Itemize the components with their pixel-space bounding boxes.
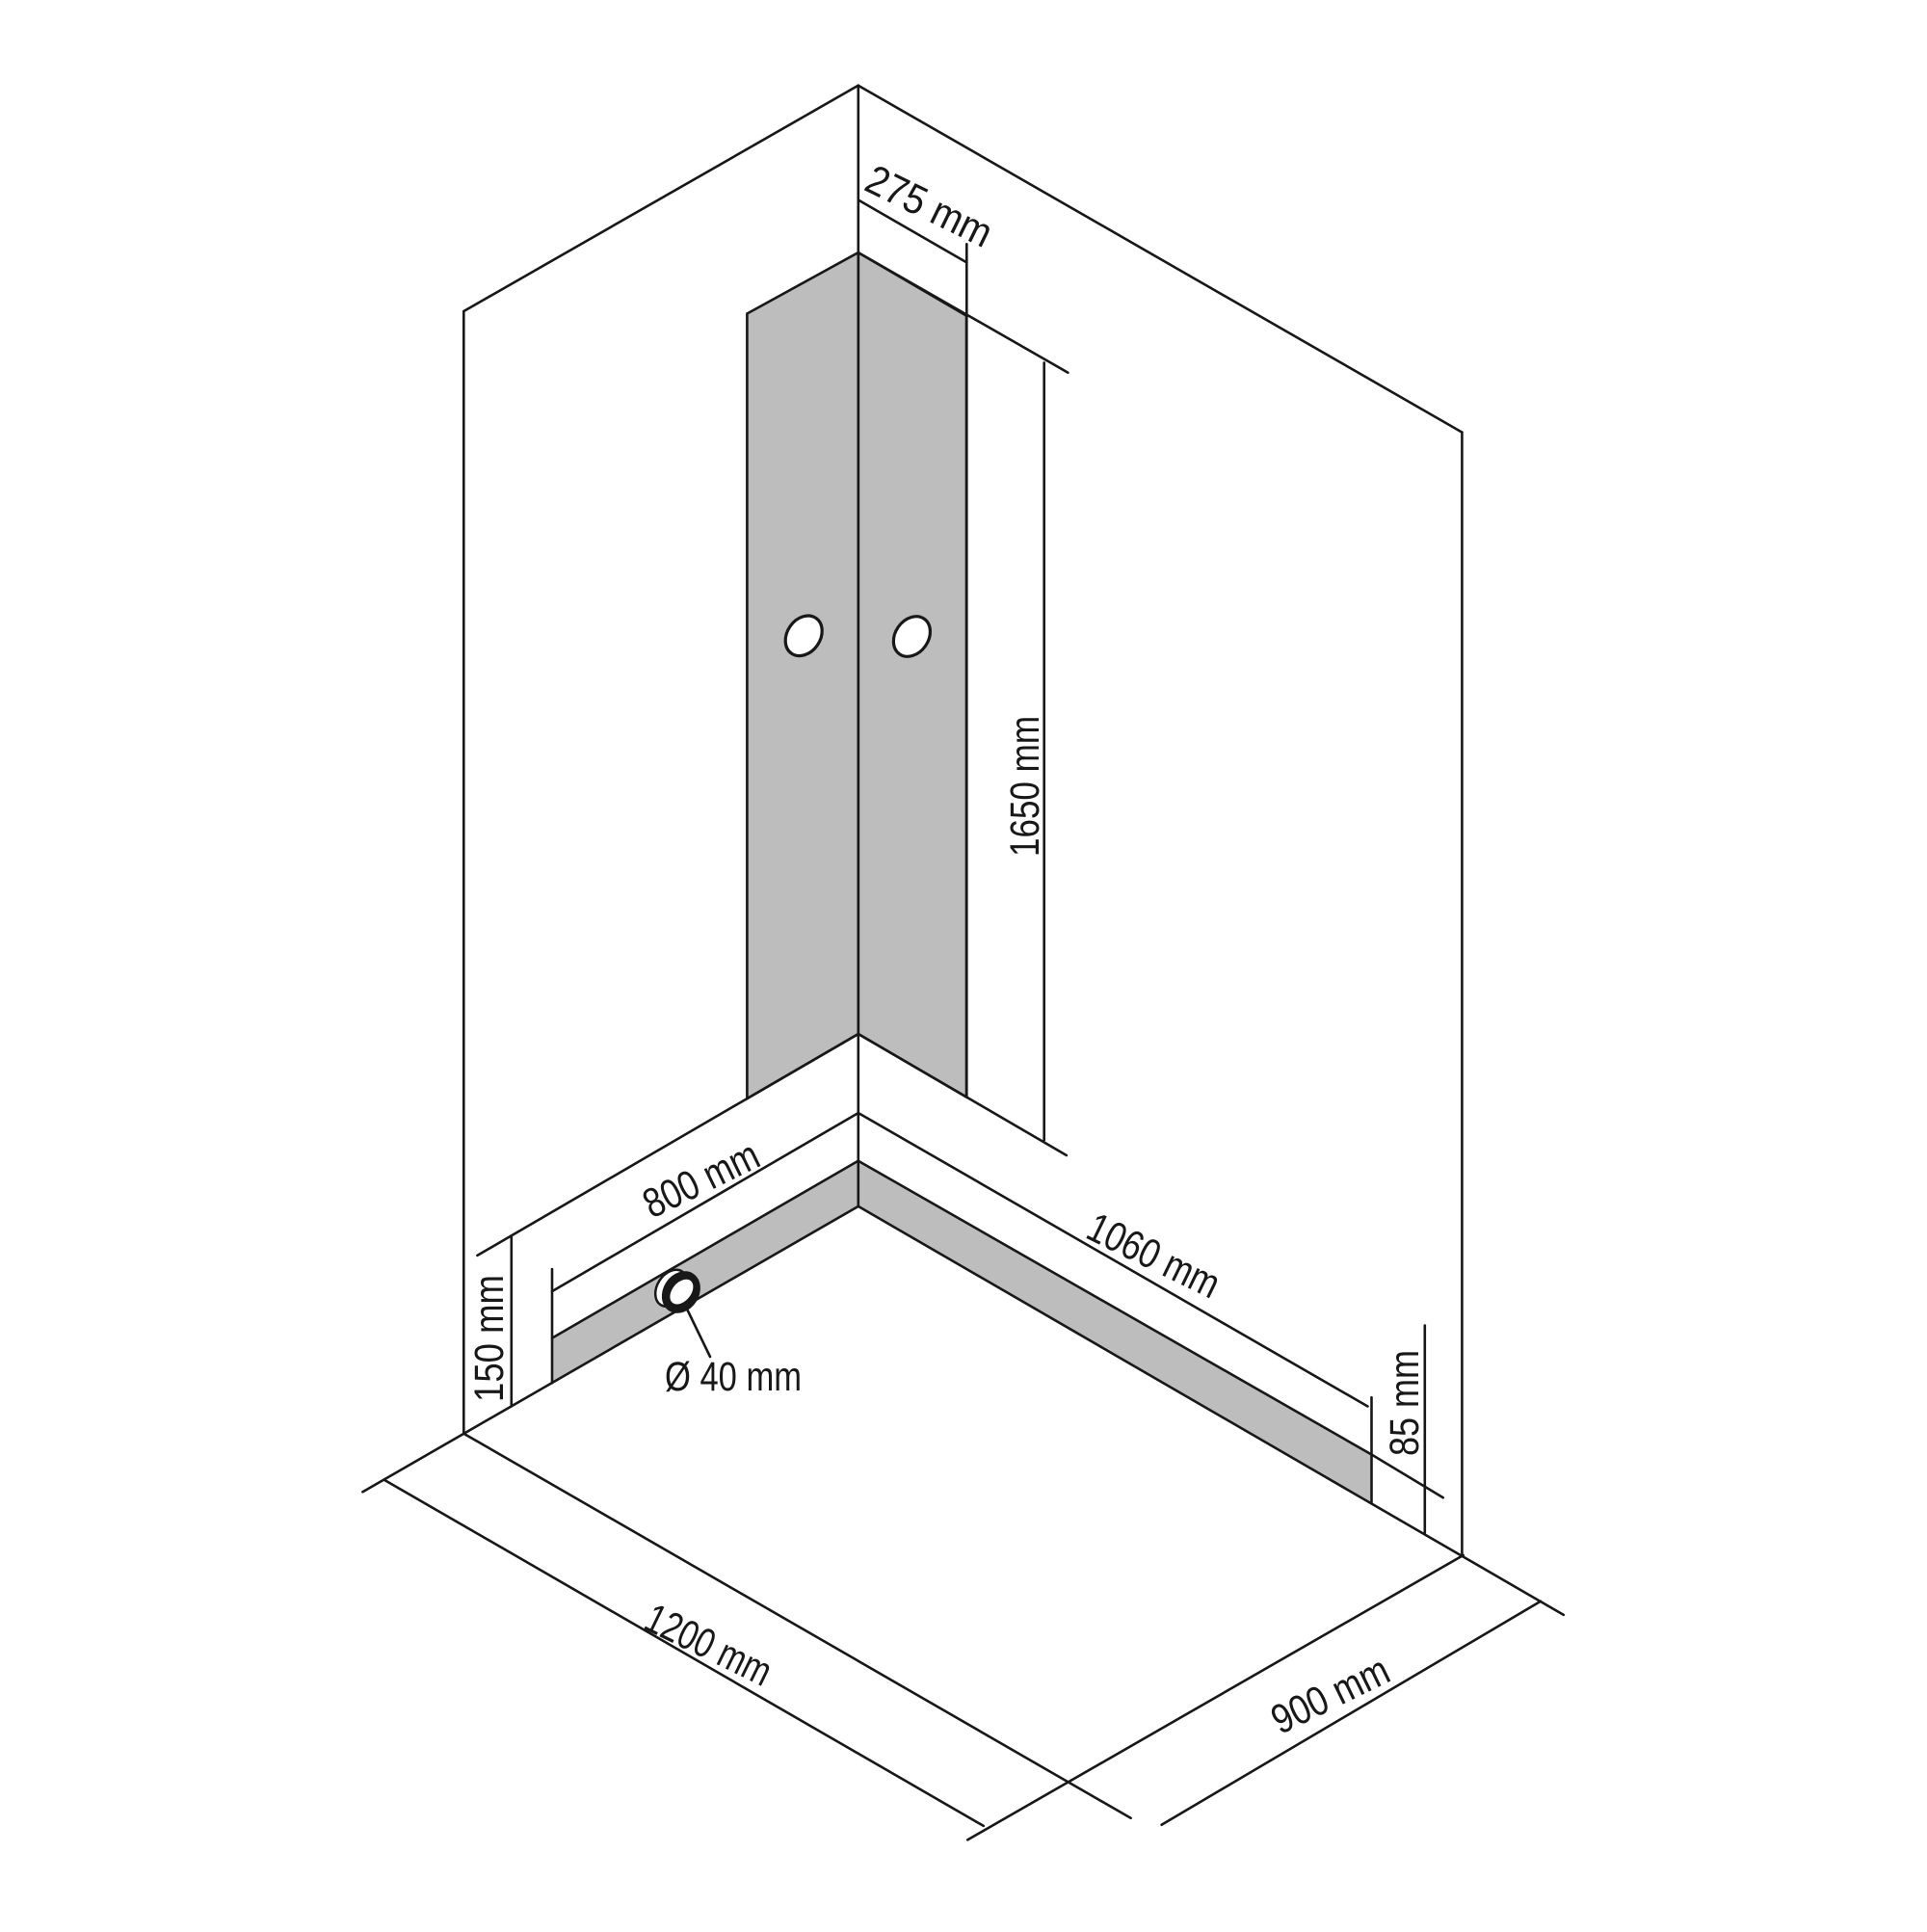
svg-text:1060 mm: 1060 mm (1080, 1204, 1227, 1309)
svg-text:150 mm: 150 mm (466, 1275, 513, 1402)
svg-text:900 mm: 900 mm (1264, 1647, 1397, 1743)
svg-text:Ø 40 mm: Ø 40 mm (665, 1354, 802, 1400)
svg-text:1650 mm: 1650 mm (1002, 716, 1048, 857)
svg-text:1200 mm: 1200 mm (638, 1595, 779, 1696)
svg-text:85 mm: 85 mm (1382, 1350, 1428, 1456)
svg-text:800 mm: 800 mm (636, 1132, 767, 1228)
